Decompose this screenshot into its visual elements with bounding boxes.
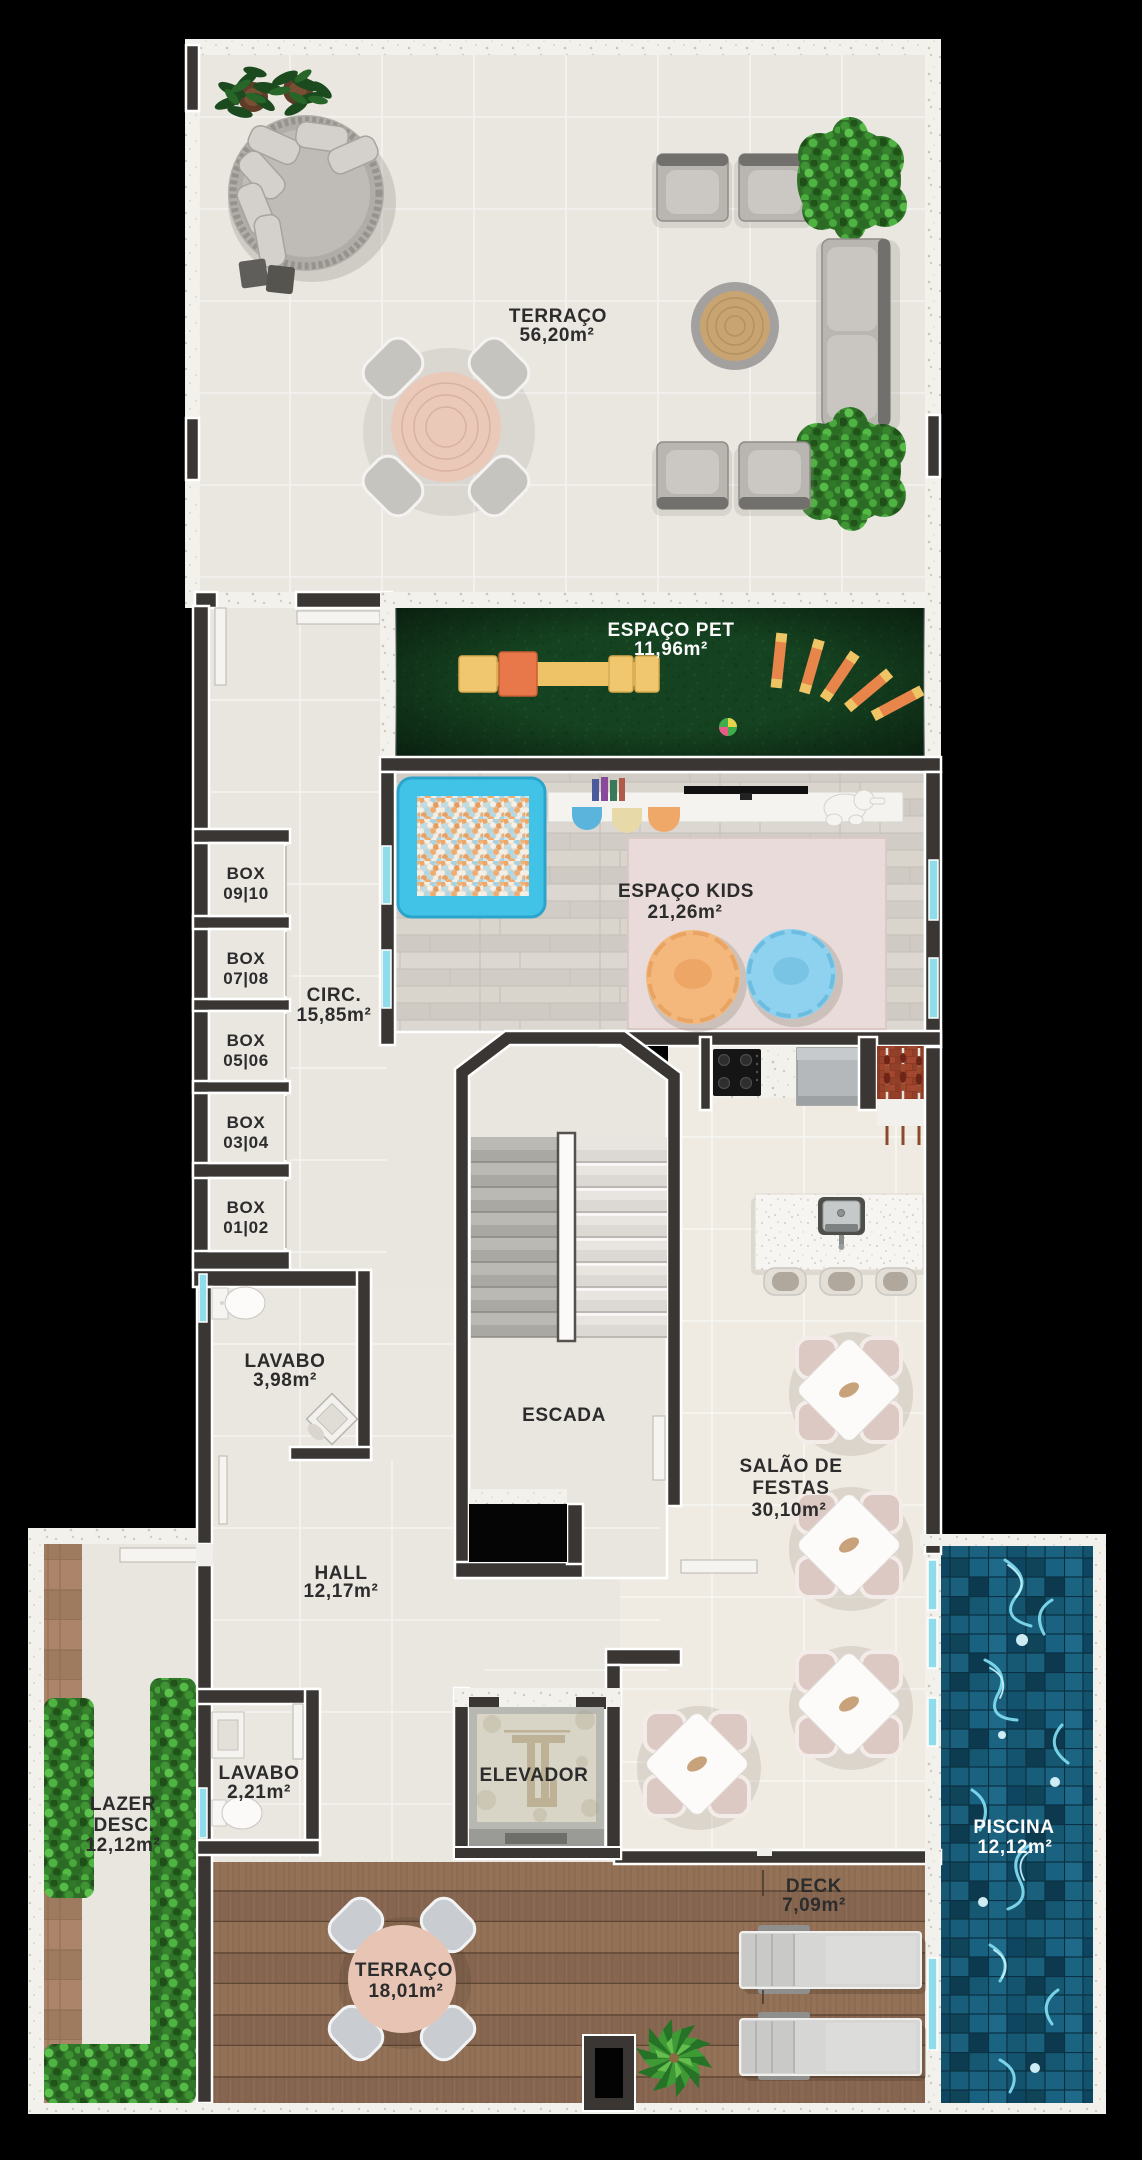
svg-text:LAVABO: LAVABO bbox=[244, 1351, 325, 1372]
svg-text:BOX: BOX bbox=[227, 949, 266, 968]
svg-text:DECK: DECK bbox=[786, 1876, 842, 1897]
svg-text:FESTAS: FESTAS bbox=[752, 1478, 829, 1499]
svg-text:ESCADA: ESCADA bbox=[522, 1405, 606, 1426]
svg-text:ESPAÇO KIDS: ESPAÇO KIDS bbox=[618, 881, 754, 902]
svg-text:ESPAÇO PET: ESPAÇO PET bbox=[607, 620, 734, 641]
svg-text:BOX: BOX bbox=[227, 1031, 266, 1050]
svg-text:11,96m²: 11,96m² bbox=[634, 639, 708, 660]
svg-text:BOX: BOX bbox=[227, 1198, 266, 1217]
svg-text:12,12m²: 12,12m² bbox=[86, 1835, 161, 1856]
svg-text:15,85m²: 15,85m² bbox=[297, 1005, 372, 1026]
svg-text:LAZER: LAZER bbox=[90, 1794, 156, 1815]
svg-text:LAVABO: LAVABO bbox=[218, 1763, 299, 1784]
svg-text:TERRAÇO: TERRAÇO bbox=[509, 306, 607, 327]
svg-text:BOX: BOX bbox=[227, 864, 266, 883]
svg-text:07|08: 07|08 bbox=[223, 969, 269, 988]
svg-text:21,26m²: 21,26m² bbox=[648, 902, 723, 923]
svg-text:3,98m²: 3,98m² bbox=[253, 1370, 317, 1391]
svg-text:ELEVADOR: ELEVADOR bbox=[480, 1765, 589, 1786]
svg-text:12,17m²: 12,17m² bbox=[304, 1581, 379, 1602]
svg-text:56,20m²: 56,20m² bbox=[520, 325, 595, 346]
svg-text:03|04: 03|04 bbox=[223, 1133, 269, 1152]
svg-text:SALÃO DE: SALÃO DE bbox=[740, 1455, 843, 1477]
svg-text:09|10: 09|10 bbox=[223, 884, 269, 903]
svg-text:05|06: 05|06 bbox=[223, 1051, 269, 1070]
svg-text:CIRC.: CIRC. bbox=[307, 985, 362, 1006]
svg-text:18,01m²: 18,01m² bbox=[369, 1981, 444, 2002]
svg-text:TERRAÇO: TERRAÇO bbox=[355, 1960, 453, 1981]
svg-text:BOX: BOX bbox=[227, 1113, 266, 1132]
svg-text:2,21m²: 2,21m² bbox=[227, 1782, 291, 1803]
svg-text:30,10m²: 30,10m² bbox=[752, 1500, 827, 1521]
svg-text:DESC.: DESC. bbox=[93, 1815, 154, 1836]
svg-text:01|02: 01|02 bbox=[223, 1218, 269, 1237]
svg-text:12,12m²: 12,12m² bbox=[978, 1837, 1053, 1858]
svg-text:PISCINA: PISCINA bbox=[973, 1817, 1054, 1838]
svg-text:7,09m²: 7,09m² bbox=[782, 1895, 846, 1916]
